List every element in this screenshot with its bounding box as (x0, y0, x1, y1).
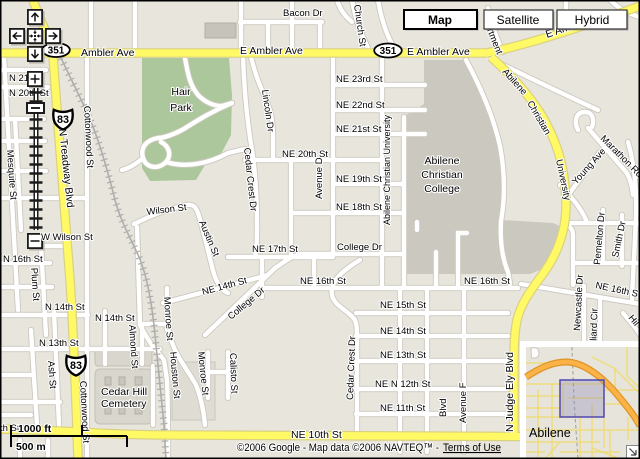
svg-text:Park: Park (170, 102, 192, 114)
svg-text:N Judge Ely Blvd: N Judge Ely Blvd (504, 352, 516, 432)
svg-text:NE 18th St: NE 18th St (336, 202, 382, 213)
svg-text:Ash St: Ash St (45, 360, 58, 389)
svg-text:83: 83 (70, 360, 82, 372)
svg-text:NE 15th St: NE 15th St (380, 300, 426, 311)
svg-text:1000 ft: 1000 ft (18, 423, 52, 435)
svg-text:College Dr: College Dr (337, 242, 382, 253)
svg-text:Plum St: Plum St (28, 267, 41, 301)
svg-text:Calisto St: Calisto St (227, 353, 239, 394)
svg-text:Avenue F: Avenue F (458, 382, 469, 423)
svg-text:NE 13th St: NE 13th St (380, 350, 426, 361)
svg-text:Christian: Christian (421, 169, 463, 181)
svg-text:NE 17th St: NE 17th St (252, 244, 298, 255)
svg-text:Abilene: Abilene (424, 155, 459, 167)
svg-text:College: College (424, 183, 460, 195)
svg-text:Cedar Crest Dr: Cedar Crest Dr (345, 336, 358, 400)
svg-text:Avenue D: Avenue D (314, 157, 325, 199)
svg-text:NE 11th St: NE 11th St (380, 403, 426, 414)
svg-text:500 m: 500 m (16, 441, 46, 453)
svg-text:N 14th St: N 14th St (95, 313, 135, 324)
svg-text:351: 351 (48, 46, 65, 57)
svg-text:Blvd: Blvd (438, 399, 449, 417)
svg-text:N 20th St: N 20th St (9, 88, 49, 99)
svg-text:Cemetery: Cemetery (101, 398, 147, 410)
svg-text:N 21: N 21 (9, 73, 29, 84)
svg-text:Map: Map (428, 13, 452, 27)
svg-text:th St: th St (0, 423, 20, 434)
svg-text:Hybrid: Hybrid (575, 13, 610, 27)
svg-text:NE 10th St: NE 10th St (291, 429, 342, 441)
svg-text:NE 16th St: NE 16th St (464, 276, 510, 287)
svg-text:Hair: Hair (171, 86, 191, 98)
svg-text:W Wilson St: W Wilson St (41, 232, 93, 243)
svg-text:351: 351 (380, 46, 397, 57)
svg-text:©2006 Google - Map data ©2006: ©2006 Google - Map data ©2006 NAVTEQ™ - (237, 442, 439, 454)
svg-text:NE N 12th St: NE N 12th St (375, 379, 431, 390)
svg-text:NE 21st St: NE 21st St (336, 124, 382, 135)
svg-text:NE 14th St: NE 14th St (380, 326, 426, 337)
svg-text:Bacon Dr: Bacon Dr (283, 8, 323, 19)
svg-text:83: 83 (57, 114, 69, 126)
svg-text:N 13th St: N 13th St (39, 338, 79, 349)
svg-text:N 16th St: N 16th St (3, 254, 43, 265)
svg-text:N 14th St: N 14th St (45, 302, 85, 313)
svg-text:E Ambler Ave: E Ambler Ave (240, 45, 303, 57)
svg-text:NE 16th St: NE 16th St (300, 276, 346, 287)
svg-text:Ambler Ave: Ambler Ave (81, 47, 135, 59)
svg-text:NE 19th St: NE 19th St (336, 174, 382, 185)
svg-text:NE 22nd St: NE 22nd St (336, 100, 385, 111)
svg-text:NE 23rd St: NE 23rd St (336, 74, 383, 85)
svg-text:Abilene Christian University: Abilene Christian University (382, 114, 392, 225)
svg-text:E Ambler Ave: E Ambler Ave (407, 46, 470, 58)
svg-text:Terms of Use: Terms of Use (443, 442, 501, 454)
svg-text:Abilene: Abilene (529, 426, 571, 440)
svg-text:Satellite: Satellite (497, 13, 540, 27)
svg-text:Cedar Hill: Cedar Hill (101, 386, 147, 398)
